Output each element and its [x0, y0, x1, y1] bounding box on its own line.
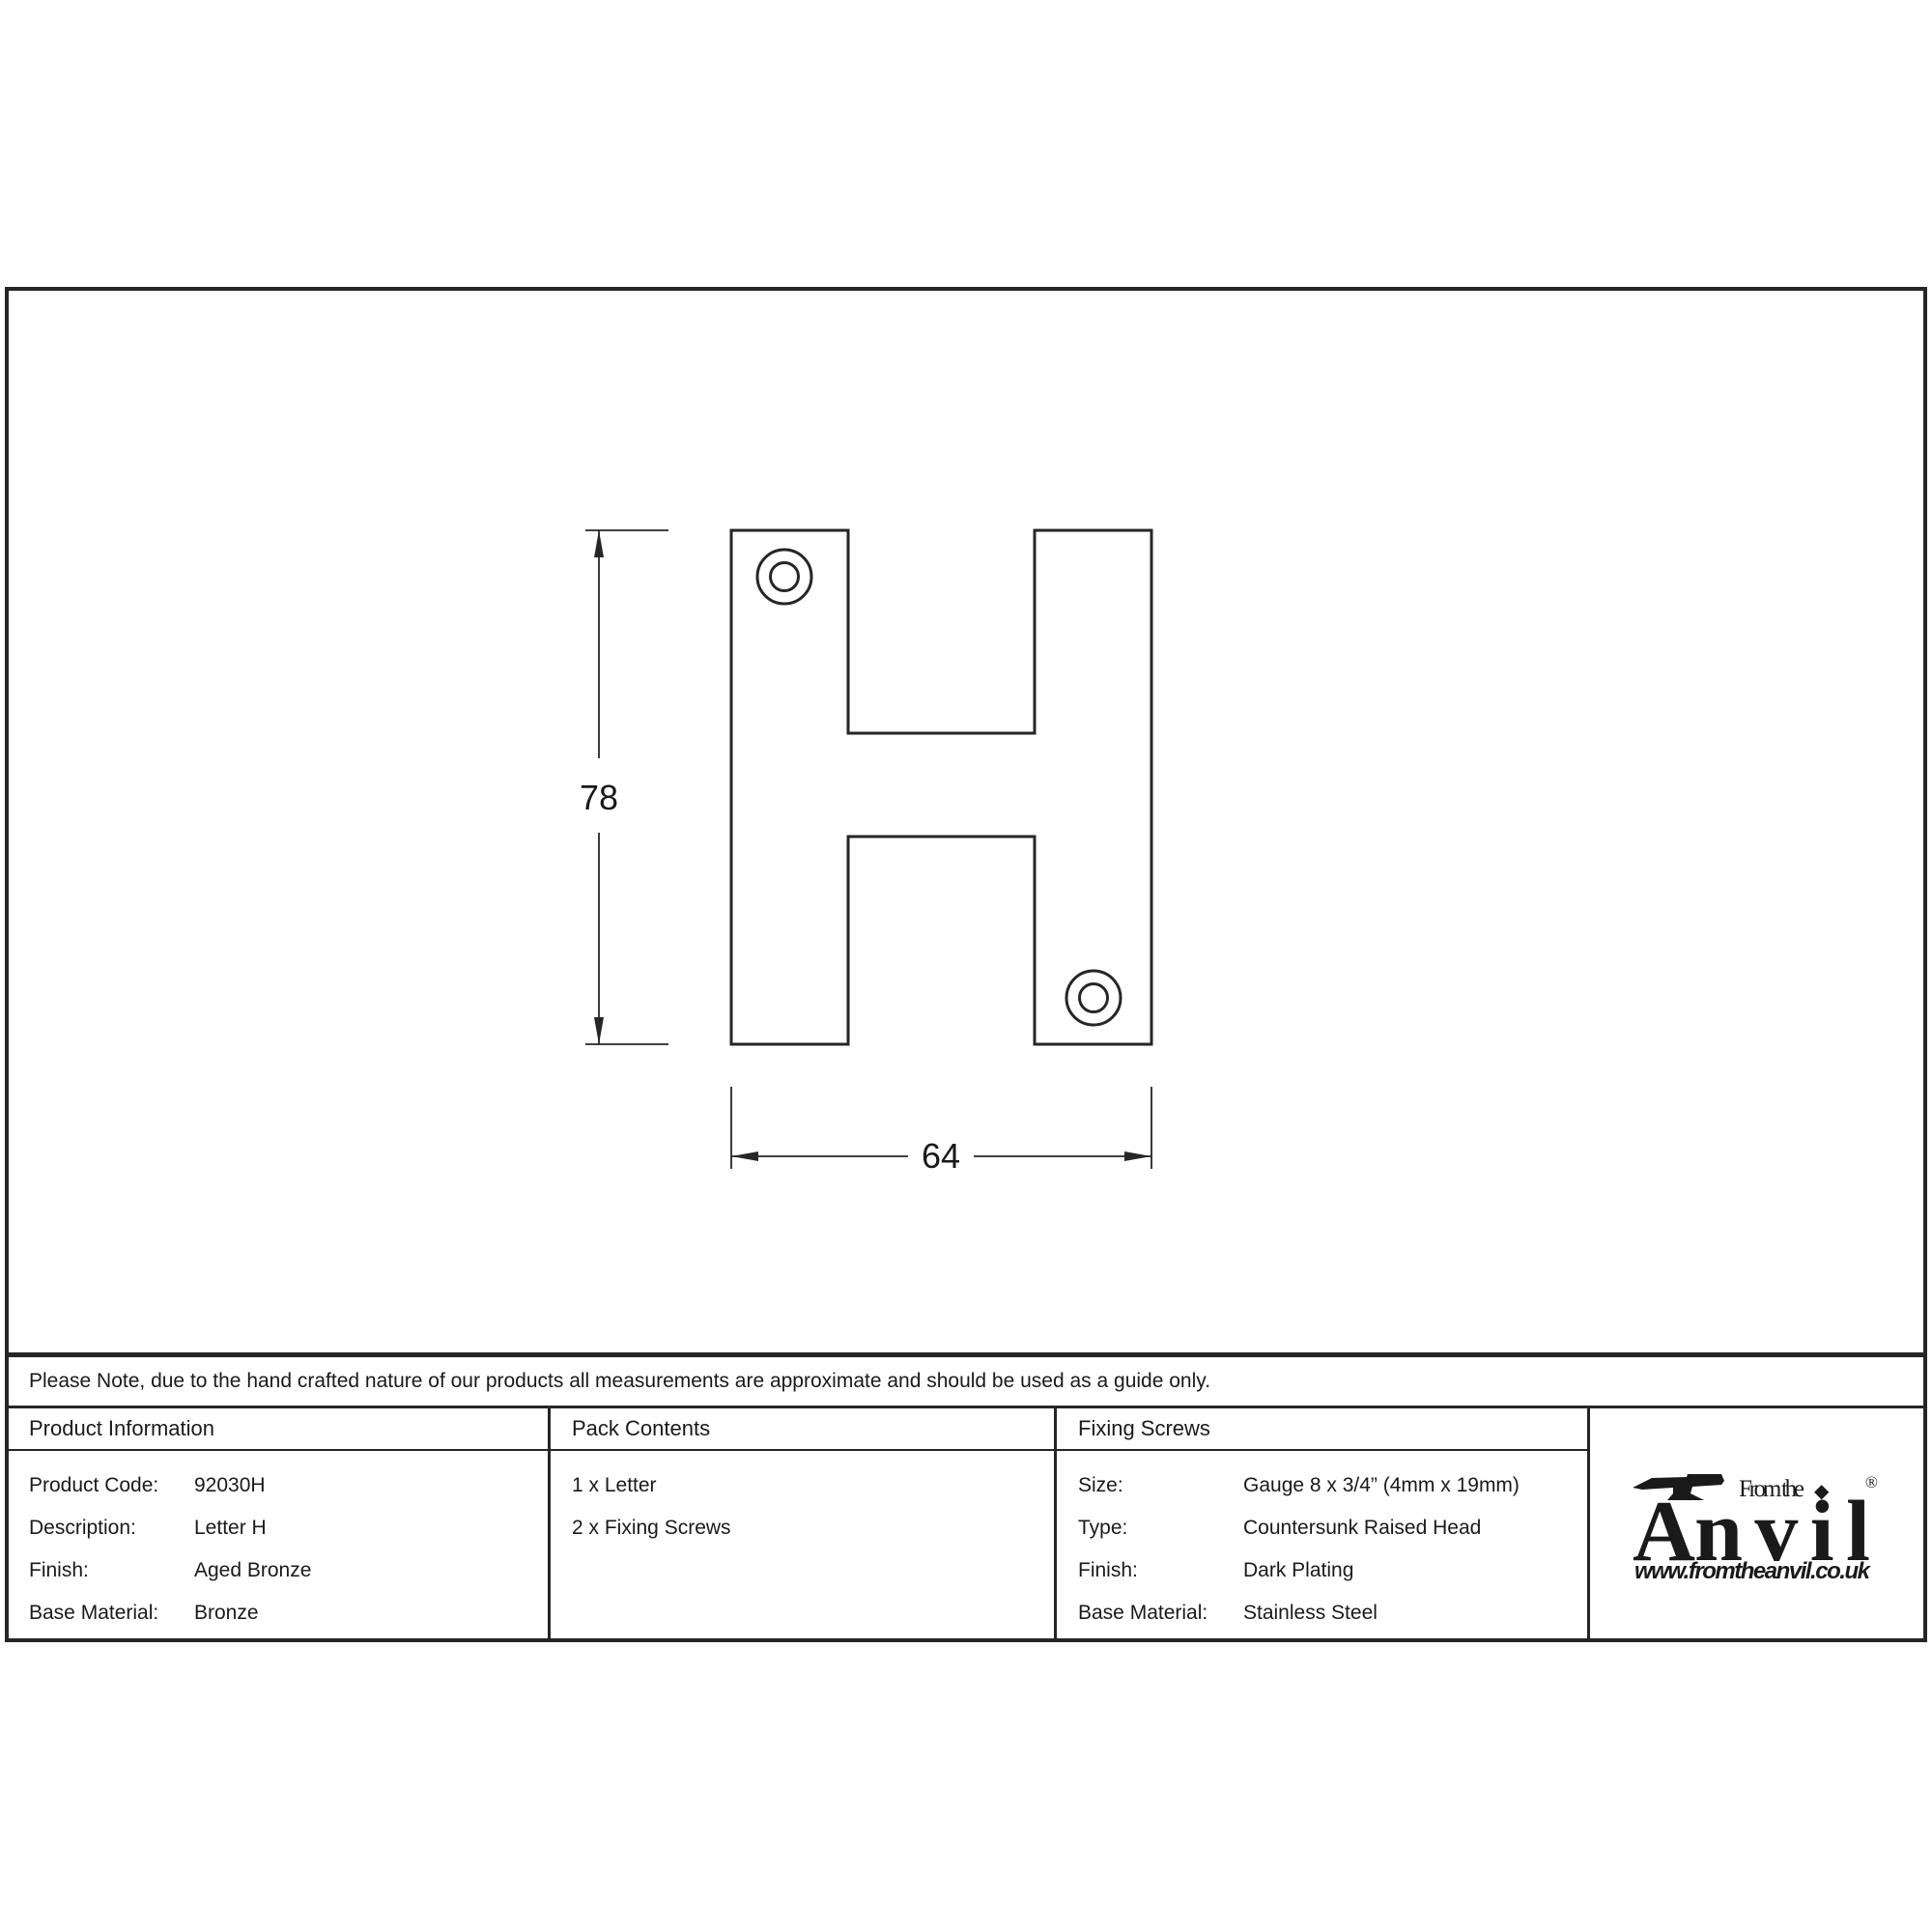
- column-header-label: Pack Contents: [572, 1416, 710, 1441]
- fixing-screws-body: Size: Gauge 8 x 3/4” (4mm x 19mm) Type: …: [1057, 1451, 1587, 1634]
- brand-prefix: From the: [1739, 1476, 1804, 1502]
- spec-value: Gauge 8 x 3/4” (4mm x 19mm): [1243, 1464, 1587, 1507]
- diamond-icon: ◆: [1814, 1481, 1830, 1502]
- note-row: Please Note, due to the hand crafted nat…: [5, 1352, 1927, 1408]
- spec-value: Dark Plating: [1243, 1549, 1587, 1592]
- pack-contents-header: Pack Contents: [551, 1408, 1054, 1451]
- product-information-body: Product Code: 92030H Description: Letter…: [5, 1451, 548, 1634]
- spec-value: Stainless Steel: [1243, 1592, 1587, 1634]
- spec-value: 92030H: [194, 1464, 548, 1507]
- column-header-label: Fixing Screws: [1078, 1416, 1210, 1441]
- width-dimension-label: 64: [922, 1136, 960, 1176]
- spec-label: Product Code:: [29, 1464, 194, 1507]
- registered-trademark-icon: ®: [1865, 1473, 1878, 1492]
- spec-row: Base Material: Bronze: [29, 1592, 548, 1634]
- spec-label: Finish:: [29, 1549, 194, 1592]
- spec-row: Finish: Aged Bronze: [29, 1549, 548, 1592]
- spec-label: Description:: [29, 1507, 194, 1549]
- pack-contents-column: Pack Contents 1 x Letter 2 x Fixing Scre…: [551, 1408, 1057, 1642]
- screw-hole-top-left: [757, 550, 811, 604]
- pack-item: 1 x Letter: [572, 1464, 1054, 1507]
- pack-item: 2 x Fixing Screws: [572, 1507, 1054, 1549]
- spec-row: Description: Letter H: [29, 1507, 548, 1549]
- spec-row: Type: Countersunk Raised Head: [1078, 1507, 1587, 1549]
- product-information-header: Product Information: [5, 1408, 548, 1451]
- fixing-screws-header: Fixing Screws: [1057, 1408, 1587, 1451]
- fixing-screws-column: Fixing Screws Size: Gauge 8 x 3/4” (4mm …: [1057, 1408, 1590, 1642]
- spec-label: Type:: [1078, 1507, 1243, 1549]
- spec-value: Bronze: [194, 1592, 548, 1634]
- screw-hole-bottom-right: [1066, 971, 1121, 1025]
- pack-contents-body: 1 x Letter 2 x Fixing Screws: [551, 1451, 1054, 1549]
- brand-logo-cell: A nvil From the ◆ ® www.fromtheanvil.co.…: [1590, 1408, 1927, 1642]
- height-dimension-label: 78: [580, 778, 618, 817]
- brand-url: www.fromtheanvil.co.uk: [1634, 1558, 1872, 1584]
- spec-row: Finish: Dark Plating: [1078, 1549, 1587, 1592]
- technical-drawing: 78 64: [541, 502, 1217, 1217]
- spec-value: Aged Bronze: [194, 1549, 548, 1592]
- spec-value: Letter H: [194, 1507, 548, 1549]
- spec-label: Size:: [1078, 1464, 1243, 1507]
- column-header-label: Product Information: [29, 1416, 214, 1441]
- arrowhead-right: [1124, 1151, 1151, 1161]
- info-table: Product Information Product Code: 92030H…: [5, 1408, 1927, 1642]
- arrowhead-down: [594, 1017, 604, 1044]
- arrowhead-up: [594, 530, 604, 557]
- spec-label: Base Material:: [1078, 1592, 1243, 1634]
- letter-h-outline: [731, 530, 1151, 1044]
- spec-row: Product Code: 92030H: [29, 1464, 548, 1507]
- arrowhead-left: [731, 1151, 758, 1161]
- note-text: Please Note, due to the hand crafted nat…: [29, 1370, 1210, 1393]
- spec-row: Base Material: Stainless Steel: [1078, 1592, 1587, 1634]
- from-the-anvil-logo: A nvil From the ◆ ® www.fromtheanvil.co.…: [1631, 1466, 1887, 1584]
- spec-label: Finish:: [1078, 1549, 1243, 1592]
- spec-sheet-page: 78 64 Please Note, due to the hand craft…: [0, 0, 1932, 1932]
- spec-label: Base Material:: [29, 1592, 194, 1634]
- spec-value: Countersunk Raised Head: [1243, 1507, 1587, 1549]
- product-information-column: Product Information Product Code: 92030H…: [5, 1408, 551, 1642]
- spec-row: Size: Gauge 8 x 3/4” (4mm x 19mm): [1078, 1464, 1587, 1507]
